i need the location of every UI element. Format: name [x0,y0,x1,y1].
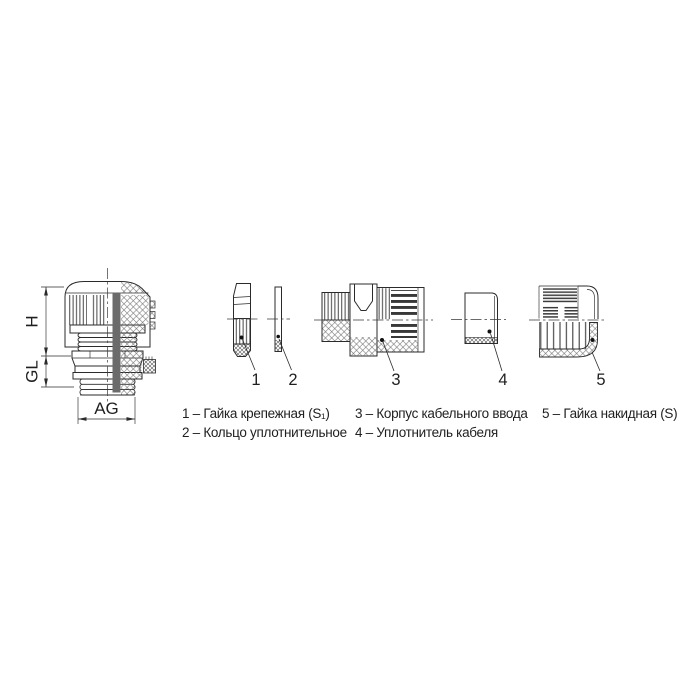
legend-item-1: 1 – Гайка крепежная (S₁) [182,406,330,421]
dimension-label-ag: AG [94,399,119,418]
part-4-callout: 4 [498,371,507,389]
part-5-view: 5 [529,286,606,389]
part-5-callout: 5 [596,371,605,389]
cable-gland-technical-diagram: H GL AG 1 2 [0,0,700,700]
part-2-callout: 2 [288,371,297,389]
drawing-canvas: H GL AG 1 2 [0,0,700,700]
side-screw-knob [144,357,156,374]
inner-tube-section [113,293,121,393]
part-3-callout: 3 [391,371,400,389]
legend-item-4: 4 – Уплотнитель кабеля [355,425,498,440]
part-2-view: 2 [267,287,298,389]
part-4-view: 4 [451,293,508,389]
legend: 1 – Гайка крепежная (S₁) 2 – Кольцо упло… [182,406,677,440]
assembled-view [65,268,156,408]
dimension-ag: AG [78,397,135,424]
legend-item-3: 3 – Корпус кабельного ввода [355,406,528,421]
legend-item-5: 5 – Гайка накидная (S) [542,406,677,421]
dimension-label-gl: GL [23,360,42,383]
part-1-callout: 1 [251,371,260,389]
dimension-label-h: H [23,315,42,327]
legend-item-2: 2 – Кольцо уплотнительное [182,425,347,440]
part-3-view: 3 [314,284,433,389]
part-1-view: 1 [227,284,261,390]
